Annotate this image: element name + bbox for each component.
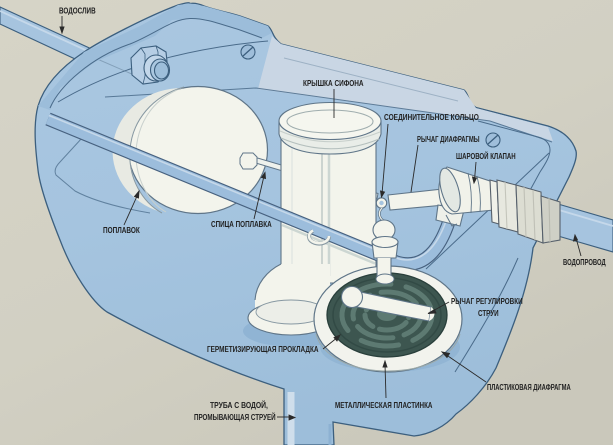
svg-text:РЫЧАГ ДИАФРАГМЫ: РЫЧАГ ДИАФРАГМЫ [417, 134, 480, 144]
svg-text:ТРУБА С ВОДОЙ,: ТРУБА С ВОДОЙ, [210, 400, 268, 410]
svg-text:ВОДОСЛИВ: ВОДОСЛИВ [59, 6, 96, 16]
svg-text:ПОПЛАВОК: ПОПЛАВОК [103, 225, 140, 235]
svg-text:СОЕДИНИТЕЛЬНОЕ КОЛЬЦО: СОЕДИНИТЕЛЬНОЕ КОЛЬЦО [384, 112, 479, 122]
svg-text:ПЛАСТИКОВАЯ ДИАФРАГМА: ПЛАСТИКОВАЯ ДИАФРАГМА [487, 382, 571, 393]
svg-text:КРЫШКА СИФОНА: КРЫШКА СИФОНА [303, 78, 364, 88]
svg-text:РЫЧАГ РЕГУЛИРОВКИ: РЫЧАГ РЕГУЛИРОВКИ [451, 296, 523, 306]
svg-text:ШАРОВОЙ КЛАПАН: ШАРОВОЙ КЛАПАН [456, 151, 516, 161]
svg-text:ГЕРМЕТИЗИРУЮЩАЯ ПРОКЛАДКА: ГЕРМЕТИЗИРУЮЩАЯ ПРОКЛАДКА [207, 344, 319, 354]
svg-text:СТРУИ: СТРУИ [478, 308, 499, 318]
svg-text:ПРОМЫВАЮЩАЯ СТРУЕЙ: ПРОМЫВАЮЩАЯ СТРУЕЙ [194, 412, 276, 422]
svg-text:ВОДОПРОВОД: ВОДОПРОВОД [563, 257, 606, 268]
svg-text:МЕТАЛЛИЧЕСКАЯ ПЛАСТИНКА: МЕТАЛЛИЧЕСКАЯ ПЛАСТИНКА [335, 400, 433, 410]
svg-text:СПИЦА ПОПЛАВКА: СПИЦА ПОПЛАВКА [211, 219, 272, 229]
